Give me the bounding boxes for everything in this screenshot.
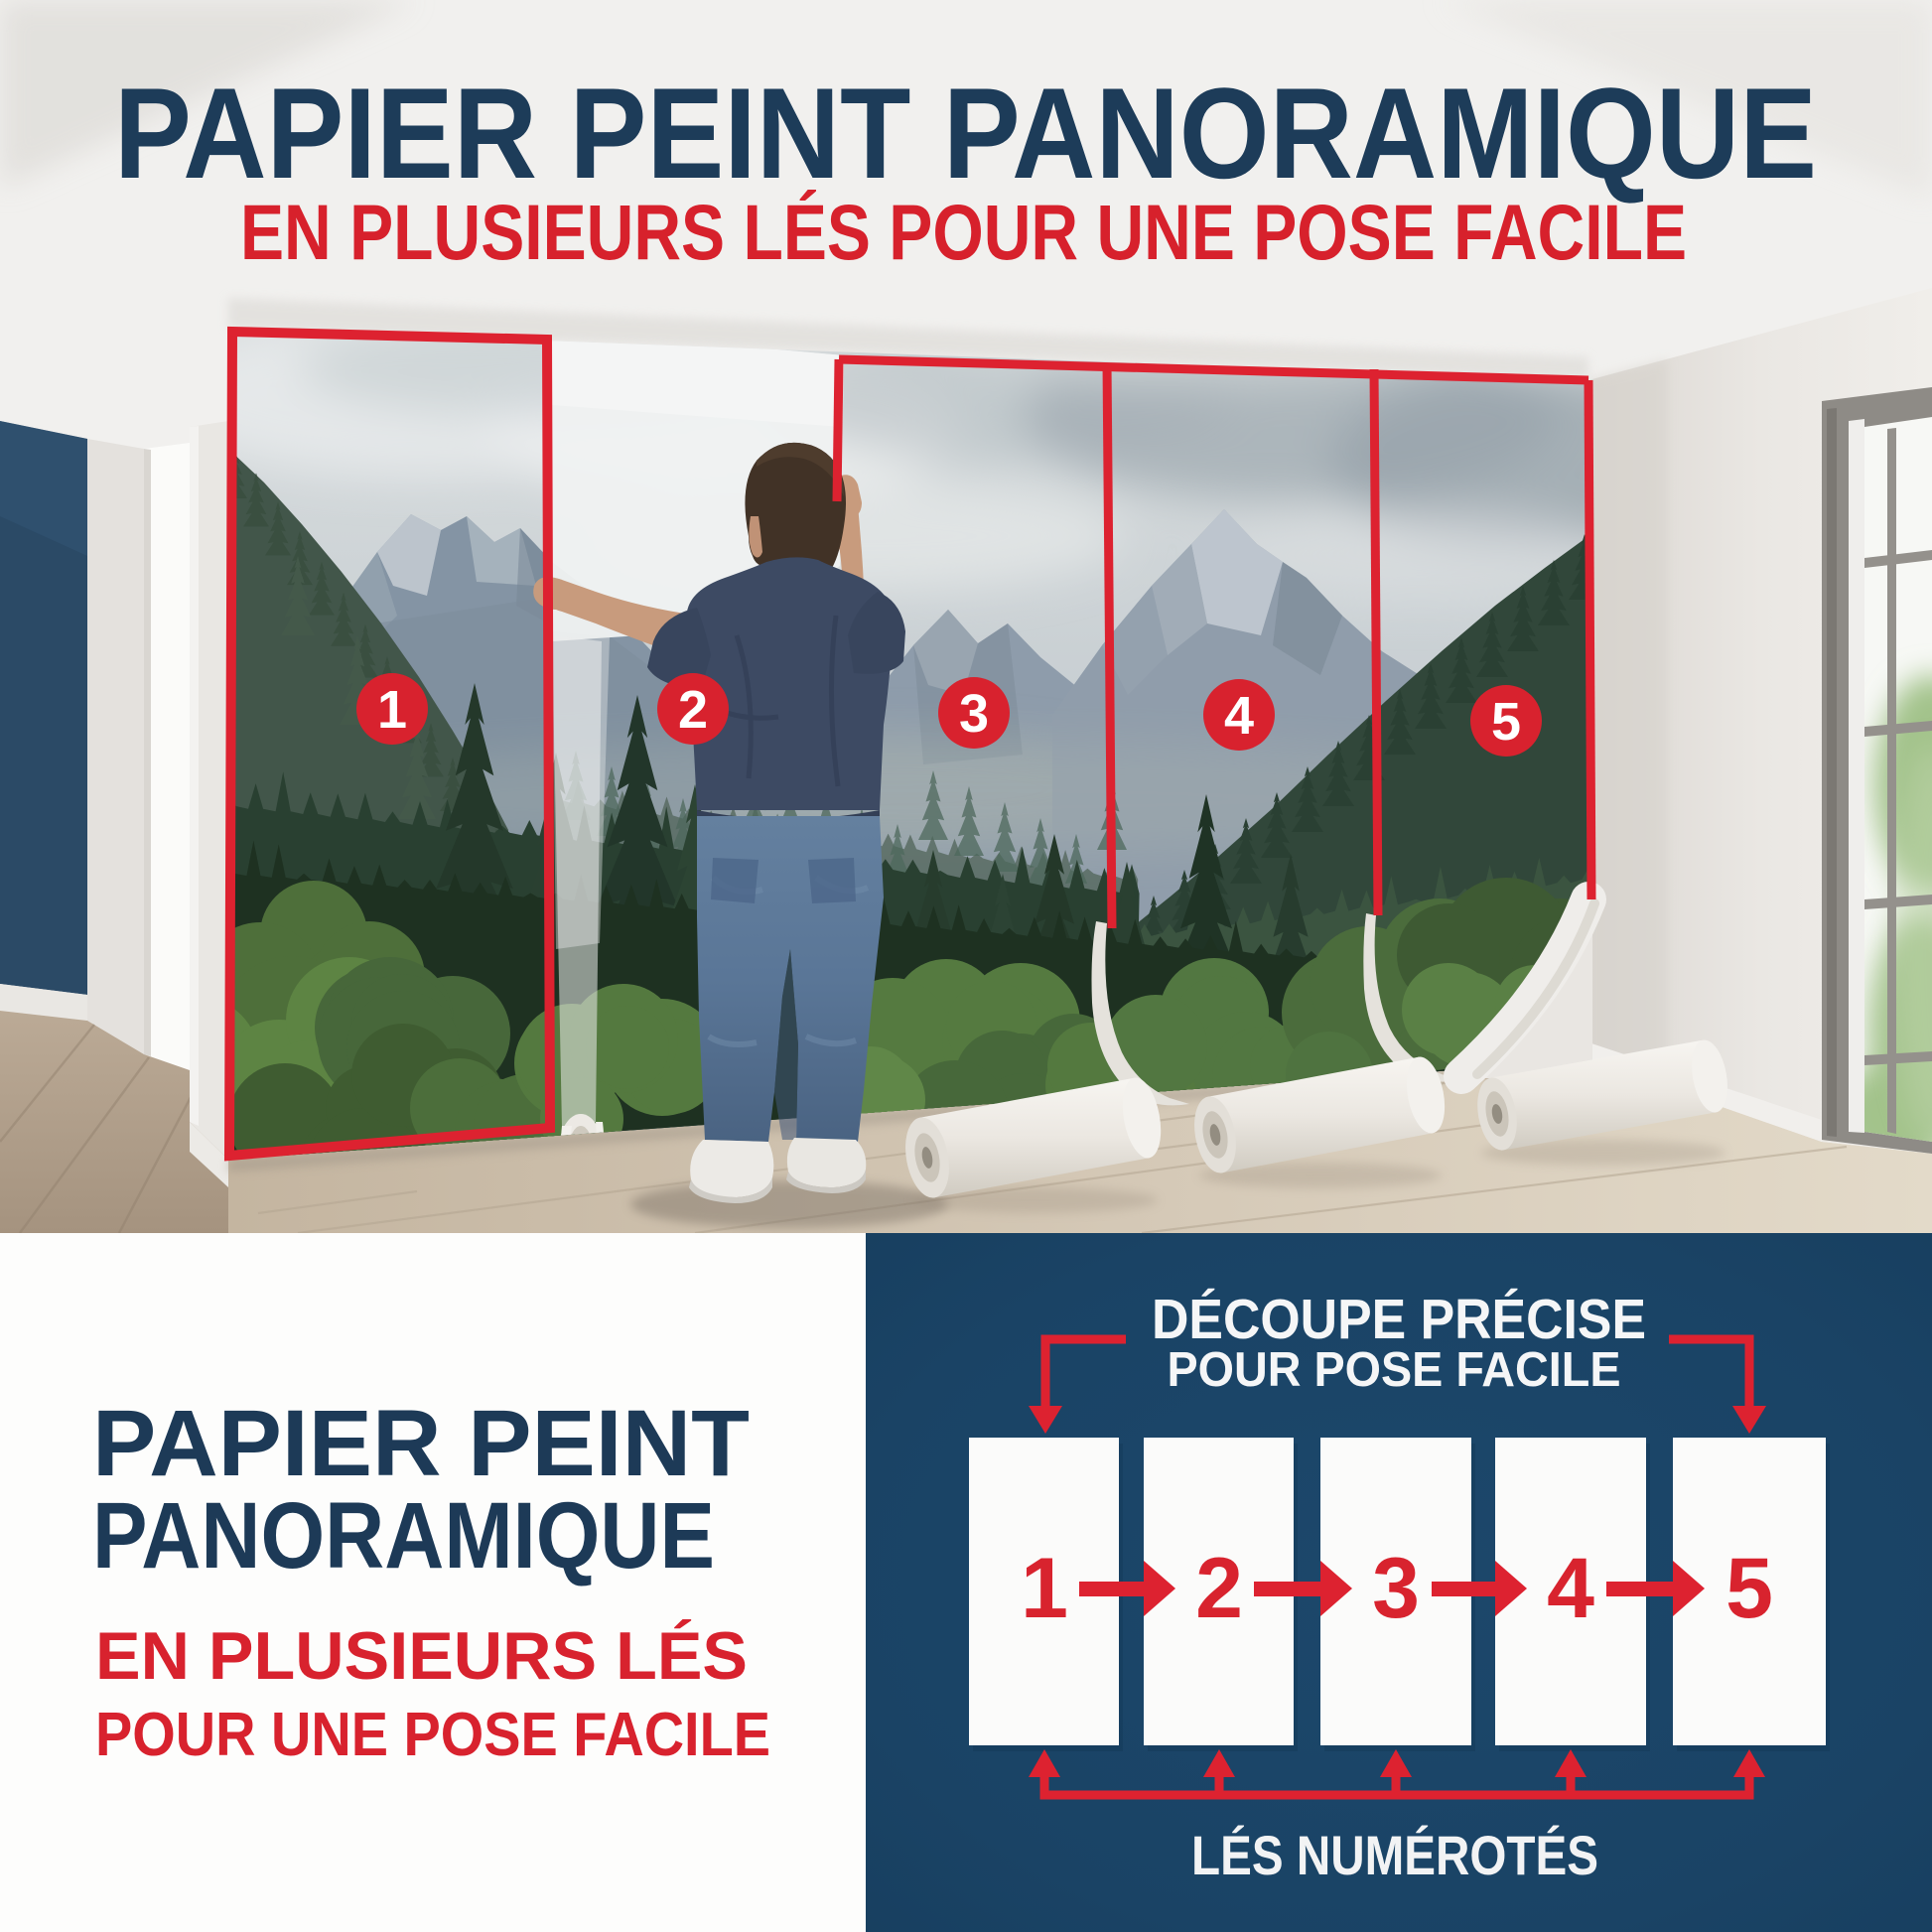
- svg-text:5: 5: [1725, 1541, 1773, 1636]
- svg-text:3: 3: [959, 684, 989, 744]
- svg-text:3: 3: [1372, 1541, 1420, 1636]
- svg-text:DÉCOUPE PRÉCISE: DÉCOUPE PRÉCISE: [1152, 1288, 1646, 1351]
- svg-text:4: 4: [1224, 686, 1254, 746]
- svg-text:4: 4: [1547, 1541, 1594, 1636]
- svg-text:1: 1: [377, 680, 407, 740]
- svg-text:5: 5: [1491, 692, 1521, 752]
- svg-text:PANORAMIQUE: PANORAMIQUE: [92, 1483, 715, 1588]
- svg-text:PAPIER PEINT: PAPIER PEINT: [92, 1391, 750, 1496]
- svg-text:POUR POSE FACILE: POUR POSE FACILE: [1168, 1343, 1621, 1397]
- svg-text:PAPIER PEINT PANORAMIQUE: PAPIER PEINT PANORAMIQUE: [114, 61, 1817, 206]
- svg-text:POUR UNE POSE FACILE: POUR UNE POSE FACILE: [95, 1701, 770, 1769]
- svg-text:1: 1: [1021, 1541, 1068, 1636]
- svg-text:EN PLUSIEURS LÉS POUR UNE POSE: EN PLUSIEURS LÉS POUR UNE POSE FACILE: [240, 188, 1687, 276]
- svg-text:EN PLUSIEURS LÉS: EN PLUSIEURS LÉS: [95, 1618, 748, 1694]
- svg-text:LÉS NUMÉROTÉS: LÉS NUMÉROTÉS: [1191, 1824, 1598, 1886]
- svg-text:2: 2: [678, 680, 708, 740]
- svg-text:2: 2: [1195, 1541, 1243, 1636]
